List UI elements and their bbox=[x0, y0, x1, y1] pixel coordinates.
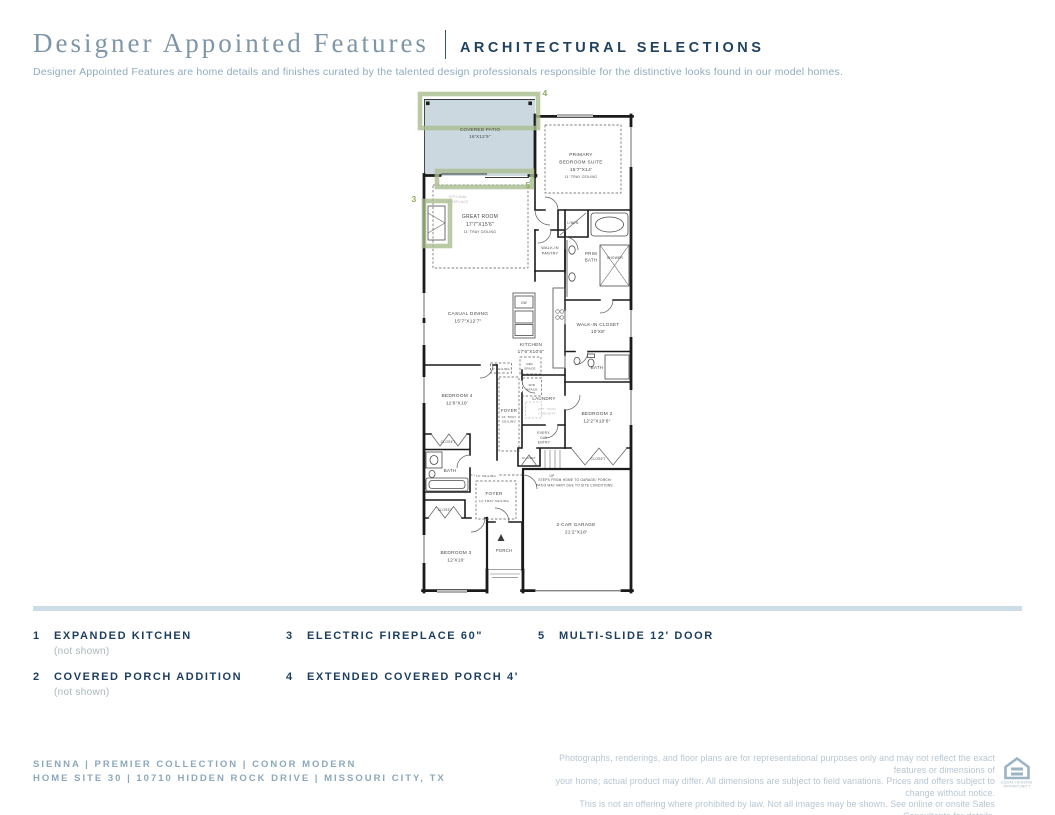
features-column-1: 1 EXPANDED KITCHEN (not shown) 2 COVERED… bbox=[33, 630, 242, 698]
footer-community-info: SIENNA | PREMIER COLLECTION | CONOR MODE… bbox=[33, 758, 446, 786]
room-label-laundry: LAUNDRY bbox=[532, 396, 555, 401]
kitchen-counter bbox=[553, 288, 565, 368]
disclaimer-line: This is not an offering where prohibited… bbox=[533, 799, 995, 815]
room-label-great-room-tray: 11' TRAY CEILING bbox=[464, 230, 496, 234]
room-label-walk-in-pantry: WALK-INPANTRY bbox=[541, 246, 558, 256]
disclaimer-line: your home; actual product may differ. Al… bbox=[533, 776, 995, 799]
floor-plan-svg: COVERED PATIO18'X12'9"PRIMARYBEDROOM SUI… bbox=[395, 85, 665, 600]
room-label-bath-hall: BATH bbox=[444, 468, 456, 473]
svg-text:OPPORTUNITY: OPPORTUNITY bbox=[1003, 785, 1031, 789]
room-label-great-room: GREAT ROOM17'7"X15'6" bbox=[462, 214, 498, 228]
feature-label: EXTENDED COVERED PORCH 4' bbox=[307, 671, 519, 683]
room-label-foyer-2-tray: 14' TRAY CEILING bbox=[479, 499, 509, 503]
stairs bbox=[545, 450, 560, 468]
section-divider bbox=[33, 606, 1022, 611]
room-label-walk-in-closet: WALK-IN CLOSET10'X8' bbox=[577, 322, 620, 334]
feature-number: 5 bbox=[538, 630, 559, 642]
feature-item-3: 3 ELECTRIC FIREPLACE 60" bbox=[286, 630, 519, 642]
kitchen-island bbox=[513, 293, 535, 338]
header: Designer Appointed Features ARCHITECTURA… bbox=[33, 28, 843, 78]
room-label-prim-bath: PRIMBATH bbox=[585, 251, 597, 263]
feature-note: (not shown) bbox=[54, 687, 242, 698]
foyer1-tray-outline bbox=[499, 377, 519, 451]
footer-disclaimer: Photographs, renderings, and floor plans… bbox=[533, 753, 995, 815]
feature-label: ELECTRIC FIREPLACE 60" bbox=[307, 630, 483, 642]
feature-label: COVERED PORCH ADDITION bbox=[54, 671, 242, 683]
room-label-primary-bedroom-suite: PRIMARYBEDROOM SUITE15'7"X14' bbox=[559, 152, 603, 173]
room-label-opt-cabinets: OPT. SINK/CABINETS bbox=[538, 407, 556, 416]
title-divider bbox=[445, 30, 446, 59]
room-label-nine-ft-ceiling: 9' CEILING bbox=[492, 367, 510, 371]
room-label-foyer-1-tray: 12' TRAYCEILING bbox=[502, 415, 517, 424]
room-label-closet-bedroom2: CLOSET bbox=[591, 457, 606, 461]
north-arrow bbox=[498, 534, 505, 541]
disclaimer-line: Photographs, renderings, and floor plans… bbox=[533, 753, 995, 776]
cooktop bbox=[556, 310, 564, 320]
room-label-linen: LINEN bbox=[567, 221, 579, 225]
footer-line-1: SIENNA | PREMIER COLLECTION | CONOR MODE… bbox=[33, 758, 446, 772]
patio-post bbox=[426, 102, 430, 106]
room-label-closet-bedroom3: CLOSET bbox=[438, 508, 453, 512]
fireplace bbox=[428, 206, 445, 240]
room-label-garage: 2-CAR GARAGE21'2"X18' bbox=[556, 522, 595, 536]
feature-note: (not shown) bbox=[54, 646, 242, 657]
page-title: Designer Appointed Features bbox=[33, 28, 429, 59]
room-label-thirteen-ft-ceiling: 13' CEILING bbox=[476, 474, 496, 478]
patio-post bbox=[528, 102, 532, 106]
room-label-porch: PORCH bbox=[496, 548, 512, 553]
feature-number: 2 bbox=[33, 671, 54, 683]
description-text: Designer Appointed Features are home det… bbox=[33, 66, 843, 78]
room-label-bedroom-2: BEDROOM 212'2"X10'6" bbox=[581, 411, 612, 425]
feature-item-5: 5 MULTI-SLIDE 12' DOOR bbox=[538, 630, 714, 642]
room-label-dw: DW bbox=[521, 301, 527, 305]
feature-item-2: 2 COVERED PORCH ADDITION bbox=[33, 671, 242, 683]
floor-plan: COVERED PATIO18'X12'9"PRIMARYBEDROOM SUI… bbox=[395, 85, 665, 600]
feature-item-1: 1 EXPANDED KITCHEN bbox=[33, 630, 242, 642]
primary-bath-fixtures bbox=[567, 213, 629, 297]
feature-number: 4 bbox=[286, 671, 307, 683]
room-label-closet-mid: CLOSET bbox=[522, 456, 536, 460]
footer-line-2: HOME SITE 30 | 10710 HIDDEN ROCK DRIVE |… bbox=[33, 772, 446, 786]
feature-number: 1 bbox=[33, 630, 54, 642]
room-label-casual-dining: CASUAL DINING15'7"X12'7" bbox=[448, 311, 488, 325]
option-number-3: 3 bbox=[412, 194, 417, 204]
feature-item-4: 4 EXTENDED COVERED PORCH 4' bbox=[286, 671, 519, 683]
sub-heading: ARCHITECTURAL SELECTIONS bbox=[460, 40, 764, 56]
room-label-foyer-2: FOYER bbox=[485, 491, 503, 496]
equal-housing-icon: EQUAL HOUSING OPPORTUNITY bbox=[1001, 754, 1033, 790]
room-label-bath-2: BATH bbox=[591, 365, 603, 370]
option-number-4: 4 bbox=[543, 88, 548, 98]
room-label-closet-bedroom4: CLOSET bbox=[441, 440, 456, 444]
room-label-shower: SHOWER bbox=[607, 256, 624, 260]
option-number-5: 5 bbox=[526, 180, 531, 190]
feature-number: 3 bbox=[286, 630, 307, 642]
features-column-2: 3 ELECTRIC FIREPLACE 60" 4 EXTENDED COVE… bbox=[286, 630, 519, 683]
room-label-kitchen: KITCHEN17'6"X10'6" bbox=[518, 342, 545, 354]
feature-label: EXPANDED KITCHEN bbox=[54, 630, 192, 642]
features-column-3: 5 MULTI-SLIDE 12' DOOR bbox=[538, 630, 714, 642]
room-label-primary-tray-ceiling: 11' TRAY CEILING bbox=[565, 175, 597, 179]
room-label-ref-space: REFSPACE bbox=[524, 362, 536, 371]
room-label-foyer-1: FOYER bbox=[501, 408, 517, 413]
room-label-optional-fireplace: OPTIONALFIREPLACE bbox=[448, 195, 469, 204]
room-label-bedroom-3: BEDROOM 312'X10' bbox=[440, 550, 471, 564]
room-label-steps-note: STEPS FROM HOME TO GARAGE/ PORCH/PATIO M… bbox=[536, 478, 614, 487]
page: Designer Appointed Features ARCHITECTURA… bbox=[0, 0, 1055, 815]
room-label-bedroom-4: BEDROOM 411'6"X10' bbox=[441, 393, 472, 407]
feature-label: MULTI-SLIDE 12' DOOR bbox=[559, 630, 714, 642]
room-label-wd-space: W/DSPACE bbox=[526, 383, 538, 392]
primary-tray-outline bbox=[545, 125, 621, 193]
